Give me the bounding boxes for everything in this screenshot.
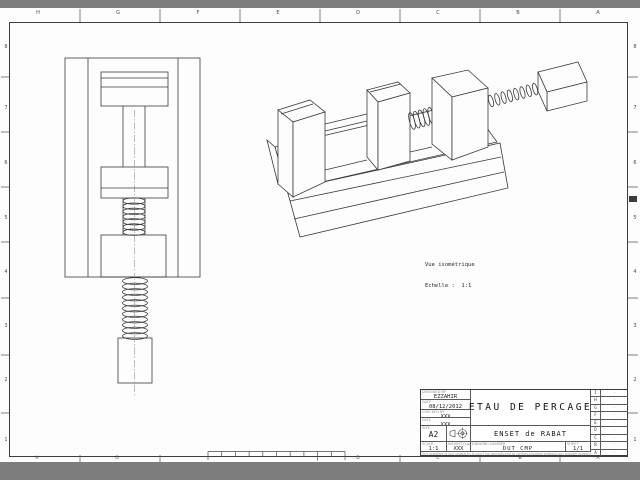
- zone-letter-bottom: D: [352, 455, 364, 463]
- revision-letter: H: [591, 397, 601, 403]
- zone-number-right: 7: [629, 104, 640, 112]
- zone-letter-top: H: [32, 9, 44, 17]
- zone-letter-top: F: [192, 9, 204, 17]
- property-disclaimer: This drawing is our property. It can't b…: [421, 452, 591, 457]
- size-value: A2: [421, 430, 446, 439]
- zone-number-left: 6: [0, 159, 12, 167]
- revision-letter: C: [591, 435, 601, 441]
- zone-number-right: 4: [629, 268, 640, 276]
- iso-view-caption-line1: Vue isométrique: [425, 262, 475, 269]
- zone-letter-top: C: [432, 9, 444, 17]
- iso-view-caption-line2: Echelle : 1:1: [425, 283, 475, 290]
- revision-row: B-: [591, 442, 628, 449]
- zone-number-right: 8: [629, 43, 640, 51]
- drawing-number-field: DRAWING NUMBER DUT CMP: [471, 442, 566, 452]
- zone-number-right: 5: [629, 214, 640, 222]
- revision-letter: F: [591, 412, 601, 418]
- revision-letter: A: [591, 450, 601, 456]
- designed-by-field: DESIGNED BY EZZAHIR: [421, 390, 471, 400]
- projection-symbol-cell: [447, 426, 471, 442]
- revision-letter: I: [591, 390, 601, 396]
- revision-value: -: [601, 397, 628, 403]
- revision-row: E-: [591, 420, 628, 427]
- checked-date-field: DATE XXX: [421, 418, 471, 426]
- zone-letter-top: A: [592, 9, 604, 17]
- revision-value: -: [601, 412, 628, 418]
- revision-value: -: [601, 405, 628, 411]
- revision-value: -: [601, 435, 628, 441]
- revision-row: H-: [591, 397, 628, 404]
- revision-value: -: [601, 390, 628, 396]
- sheet-field: SHEET 1/1: [566, 442, 591, 452]
- zone-number-left: 7: [0, 104, 12, 112]
- zone-number-left: 8: [0, 43, 12, 51]
- zone-letter-bottom: G: [111, 455, 123, 463]
- zone-letter-top: D: [352, 9, 364, 17]
- zone-number-right: 3: [629, 322, 640, 330]
- zone-letter-top: G: [112, 9, 124, 17]
- zone-letter-top: E: [272, 9, 284, 17]
- revision-row: I-: [591, 390, 628, 397]
- zone-number-left: 4: [0, 268, 12, 276]
- revision-letter: D: [591, 427, 601, 433]
- revision-value: -: [601, 427, 628, 433]
- zone-number-right: 6: [629, 159, 640, 167]
- zone-number-right: 1: [629, 436, 640, 444]
- zone-number-left: 1: [0, 436, 12, 444]
- revision-letter: G: [591, 405, 601, 411]
- revision-row: D-: [591, 427, 628, 434]
- zone-number-right: 2: [629, 376, 640, 384]
- revision-row: F-: [591, 412, 628, 419]
- date-field: DATE 08/12/2012: [421, 400, 471, 410]
- revision-value: -: [601, 442, 628, 448]
- zone-number-left: 5: [0, 214, 12, 222]
- zone-number-left: 2: [0, 376, 12, 384]
- zone-letter-bottom: A: [592, 455, 604, 463]
- zone-letter-top: B: [512, 9, 524, 17]
- revision-row: A-: [591, 450, 628, 456]
- revision-row: C-: [591, 435, 628, 442]
- centering-mark: [629, 196, 637, 202]
- projection-symbol-icon: [447, 426, 471, 441]
- drawing-title: ETAU DE PERCAGE: [471, 390, 591, 426]
- revision-value: -: [601, 450, 628, 456]
- revision-value: -: [601, 420, 628, 426]
- revision-letter: B: [591, 442, 601, 448]
- title-block: DESIGNED BY EZZAHIR DATE 08/12/2012 CHEC…: [420, 389, 628, 456]
- scale-field: SCALE 1:1: [421, 442, 447, 452]
- size-field: SIZE A2: [421, 426, 447, 442]
- weight-field: WEIGHT (kg) XXX: [447, 442, 471, 452]
- zone-number-left: 3: [0, 322, 12, 330]
- zone-letter-bottom: H: [31, 455, 43, 463]
- iso-view-caption: Vue isométrique Echelle : 1:1: [425, 248, 475, 297]
- revision-letter: E: [591, 420, 601, 426]
- drawing-subtitle: ENSET de RABAT: [471, 426, 591, 442]
- revision-row: G-: [591, 405, 628, 412]
- revision-table: I- H- G- F- E- D- C- B- A-: [591, 390, 628, 456]
- screenshot-root: { "zones": { "top": ["H","G","F","E","D"…: [0, 0, 640, 480]
- checked-by-field: CHECKED BY XXX: [421, 410, 471, 418]
